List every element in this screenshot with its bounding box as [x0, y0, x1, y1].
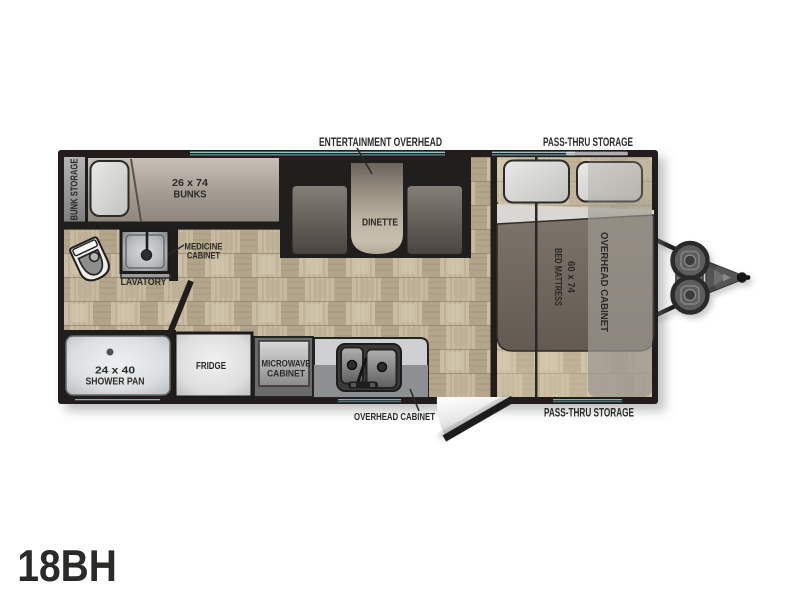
svg-text:PASS-THRU STORAGE: PASS-THRU STORAGE [543, 137, 633, 149]
svg-text:ENTERTAINMENT OVERHEAD: ENTERTAINMENT OVERHEAD [319, 137, 442, 149]
svg-text:18BH: 18BH [17, 542, 117, 591]
svg-text:OVERHEAD CABINET: OVERHEAD CABINET [354, 411, 435, 423]
svg-text:24 x 40: 24 x 40 [95, 366, 136, 377]
svg-text:BUNK STORAGE: BUNK STORAGE [70, 158, 81, 220]
svg-text:SHOWER PAN: SHOWER PAN [86, 377, 145, 388]
svg-text:PASS-THRU STORAGE: PASS-THRU STORAGE [544, 408, 634, 420]
svg-text:CABINET: CABINET [187, 251, 220, 261]
svg-text:CABINET: CABINET [267, 369, 305, 380]
svg-text:60 x 74: 60 x 74 [565, 261, 577, 293]
svg-text:BUNKS: BUNKS [174, 189, 207, 201]
svg-text:26 x 74: 26 x 74 [172, 177, 208, 189]
svg-text:DINETTE: DINETTE [362, 217, 398, 229]
svg-text:OVERHEAD CABINET: OVERHEAD CABINET [598, 232, 610, 333]
svg-text:FRIDGE: FRIDGE [196, 360, 226, 372]
svg-text:BED MATTRESS: BED MATTRESS [552, 248, 564, 306]
svg-text:LAVATORY: LAVATORY [121, 277, 167, 288]
